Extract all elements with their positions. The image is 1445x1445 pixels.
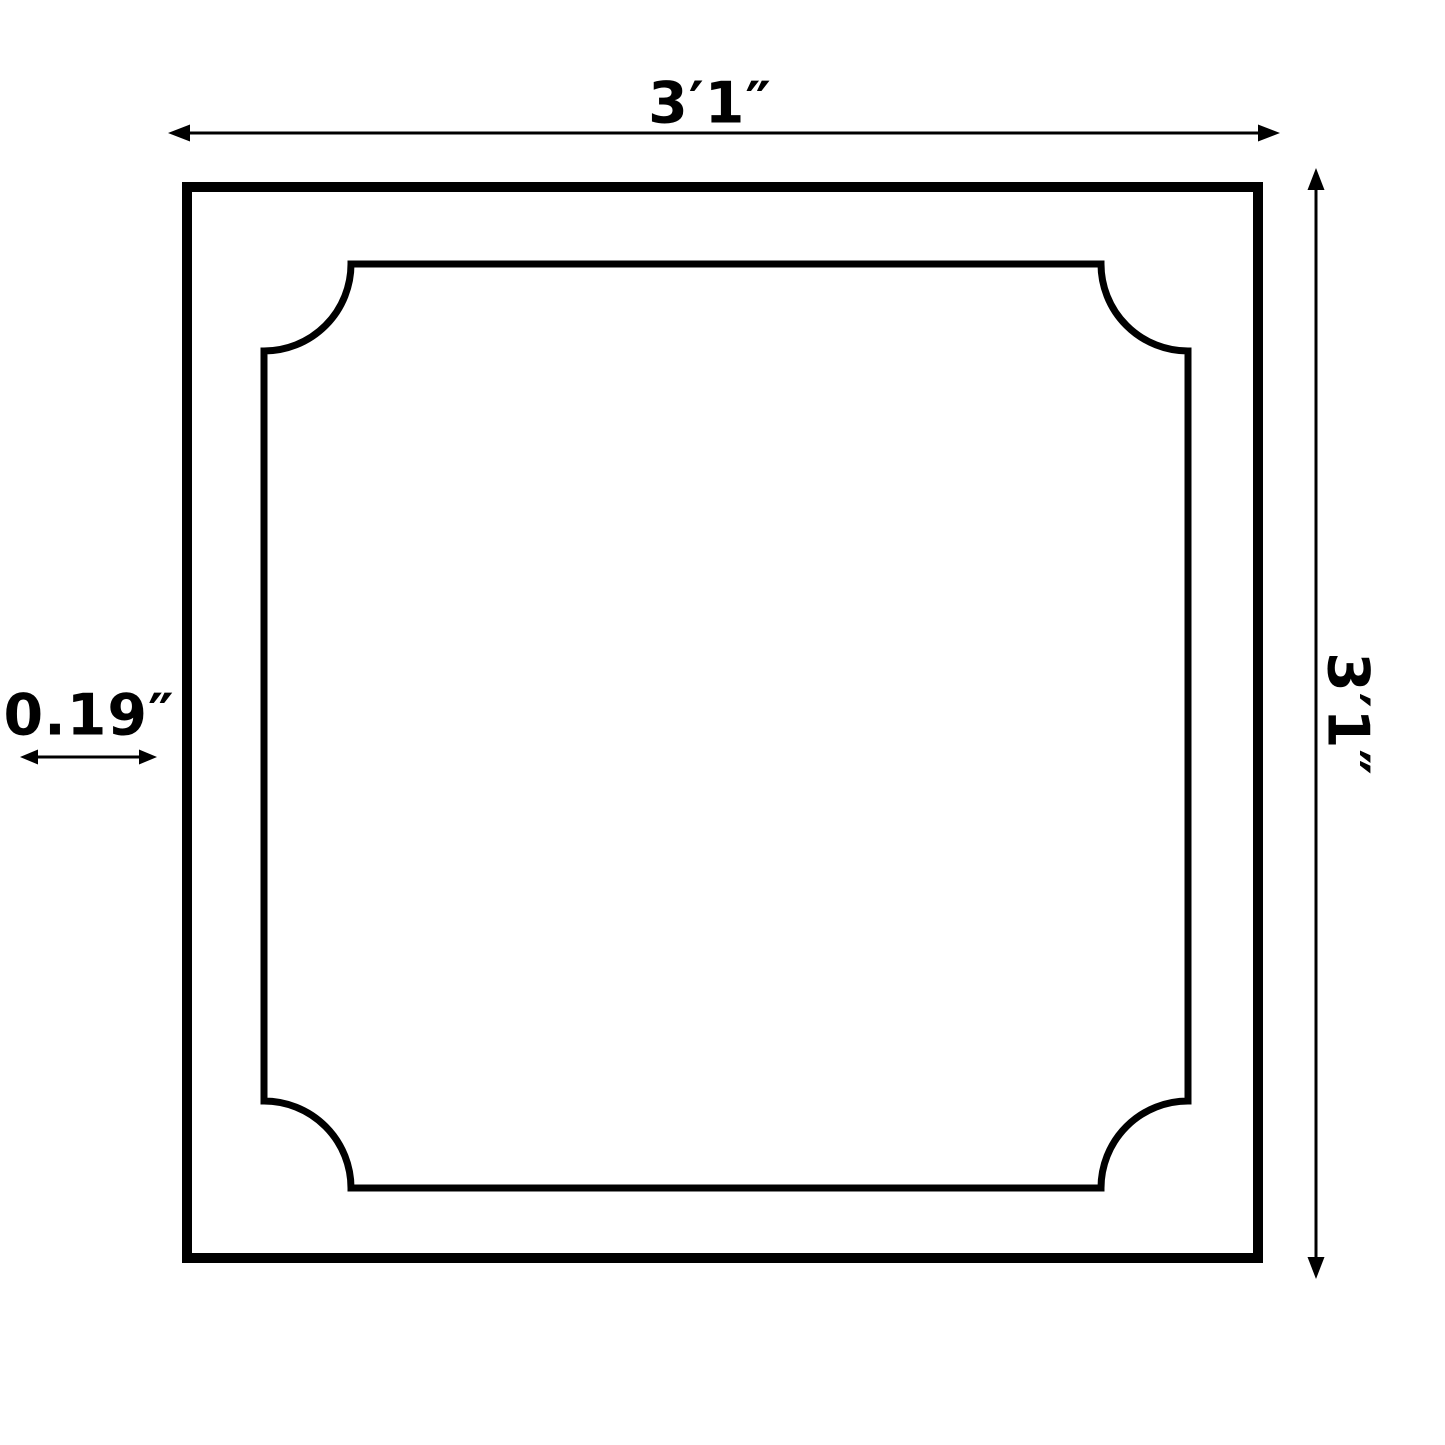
panel-drawing — [0, 0, 1445, 1445]
arrow-left-icon — [168, 125, 190, 142]
thickness-dimension-line — [20, 750, 157, 765]
arrow-left-icon — [20, 750, 38, 765]
arrow-right-icon — [1258, 125, 1280, 142]
panel-outer-edge — [187, 187, 1258, 1258]
width-dimension-label: 3′1″ — [648, 76, 772, 133]
height-dimension-label: 3′1″ — [1319, 652, 1376, 776]
diagram-canvas: 3′1″ 3′1″ 0.19″ — [0, 0, 1445, 1445]
thickness-dimension-label: 0.19″ — [3, 688, 174, 745]
arrow-down-icon — [1308, 1257, 1325, 1279]
arrow-up-icon — [1308, 168, 1325, 190]
panel-inner-groove — [264, 264, 1188, 1188]
arrow-right-icon — [139, 750, 157, 765]
